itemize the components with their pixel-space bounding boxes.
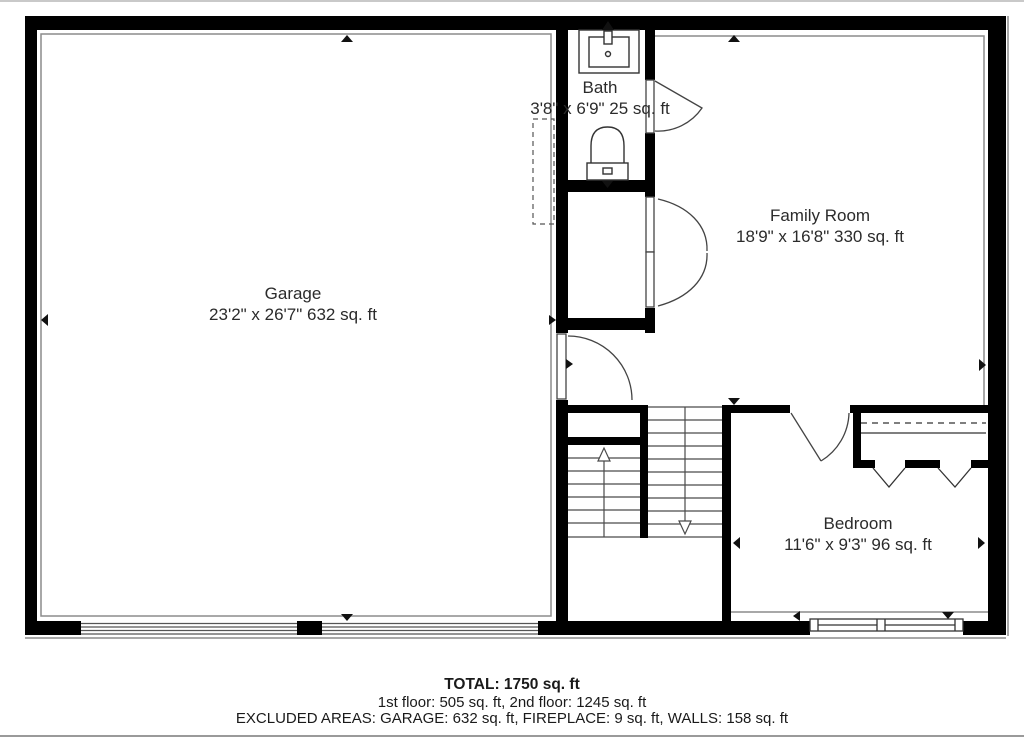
bedroom-window-icon bbox=[810, 619, 963, 631]
bedroom-room-dims: 11'6" x 9'3" 96 sq. ft bbox=[784, 534, 932, 555]
floor-plan-page: Garage 23'2" x 26'7" 632 sq. ft Bath 3'8… bbox=[0, 0, 1024, 738]
floor-areas-text: 1st floor: 505 sq. ft, 2nd floor: 1245 s… bbox=[0, 695, 1024, 711]
marker-garage-bottom-icon bbox=[341, 614, 353, 621]
stairs-up-arrow-icon bbox=[598, 448, 610, 461]
bedroom-north-wall bbox=[731, 405, 790, 413]
bath-label: Bath 3'8" x 6'9" 25 sq. ft bbox=[530, 77, 670, 119]
page-bottom-edge bbox=[0, 735, 1024, 737]
marker-bedroom-bottom-icon bbox=[942, 612, 954, 619]
bedroom-west-wall bbox=[722, 405, 731, 635]
area-summary: TOTAL: 1750 sq. ft 1st floor: 505 sq. ft… bbox=[0, 677, 1024, 727]
bottom-wall-middle bbox=[538, 621, 810, 635]
stair-top-wall bbox=[568, 405, 648, 413]
left-wall bbox=[25, 16, 37, 635]
marker-garage-top-icon bbox=[341, 35, 353, 42]
stairs-down-arrow-icon bbox=[679, 521, 691, 534]
bottom-wall-right bbox=[963, 621, 1006, 635]
right-wall bbox=[988, 16, 1006, 635]
closet-west-wall bbox=[853, 413, 861, 468]
stair-mid-wall bbox=[568, 437, 644, 445]
toilet-icon bbox=[587, 127, 628, 188]
bedroom-label: Bedroom 11'6" x 9'3" 96 sq. ft bbox=[784, 513, 932, 555]
marker-bedroom-right-icon bbox=[978, 537, 985, 549]
garage-label: Garage 23'2" x 26'7" 632 sq. ft bbox=[209, 283, 377, 325]
closet-south-wall-3 bbox=[971, 460, 988, 468]
closet-south-wall-1 bbox=[853, 460, 875, 468]
marker-bedroom-top-icon bbox=[728, 398, 740, 405]
family-room-label: Family Room 18'9" x 16'8" 330 sq. ft bbox=[736, 205, 904, 247]
family-room-dims: 18'9" x 16'8" 330 sq. ft bbox=[736, 226, 904, 247]
closet-double-door-icon bbox=[646, 197, 707, 307]
garage-door-post bbox=[297, 621, 322, 635]
marker-hall-wall-icon bbox=[549, 315, 556, 325]
garage-inset-line bbox=[41, 34, 551, 616]
stair-center-wall bbox=[640, 405, 648, 538]
garage-room-dims: 23'2" x 26'7" 632 sq. ft bbox=[209, 304, 377, 325]
marker-bedroom-left-icon bbox=[733, 537, 740, 549]
garage-partition-wall-lower bbox=[556, 400, 568, 635]
bath-room-dims: 3'8" x 6'9" 25 sq. ft bbox=[530, 98, 670, 119]
top-wall bbox=[25, 16, 1006, 30]
bath-east-wall-upper bbox=[645, 16, 655, 80]
garage-room-name: Garage bbox=[209, 283, 377, 304]
bottom-wall-left bbox=[25, 621, 81, 635]
marker-family-right-icon bbox=[979, 359, 986, 371]
garage-door-left-icon bbox=[81, 624, 297, 635]
marker-hall-door-icon bbox=[566, 359, 573, 369]
family-room-name: Family Room bbox=[736, 205, 904, 226]
marker-garage-left-icon bbox=[41, 314, 48, 326]
bifold-door-icons bbox=[873, 468, 971, 487]
garage-door-right-icon bbox=[322, 624, 538, 635]
closet-interior bbox=[861, 423, 986, 433]
closet-south-wall-2 bbox=[905, 460, 940, 468]
excluded-areas-text: EXCLUDED AREAS: GARAGE: 632 sq. ft, FIRE… bbox=[0, 711, 1024, 727]
bedroom-room-name: Bedroom bbox=[784, 513, 932, 534]
closet-north-wall bbox=[850, 405, 1006, 413]
total-area-text: TOTAL: 1750 sq. ft bbox=[0, 677, 1024, 693]
floor-plan-drawing bbox=[0, 0, 1024, 738]
garage-partition-wall-upper bbox=[556, 16, 568, 333]
bath-room-name: Bath bbox=[530, 77, 670, 98]
hall-closet-south-wall bbox=[556, 318, 655, 330]
bedroom-door-icon bbox=[791, 413, 849, 461]
